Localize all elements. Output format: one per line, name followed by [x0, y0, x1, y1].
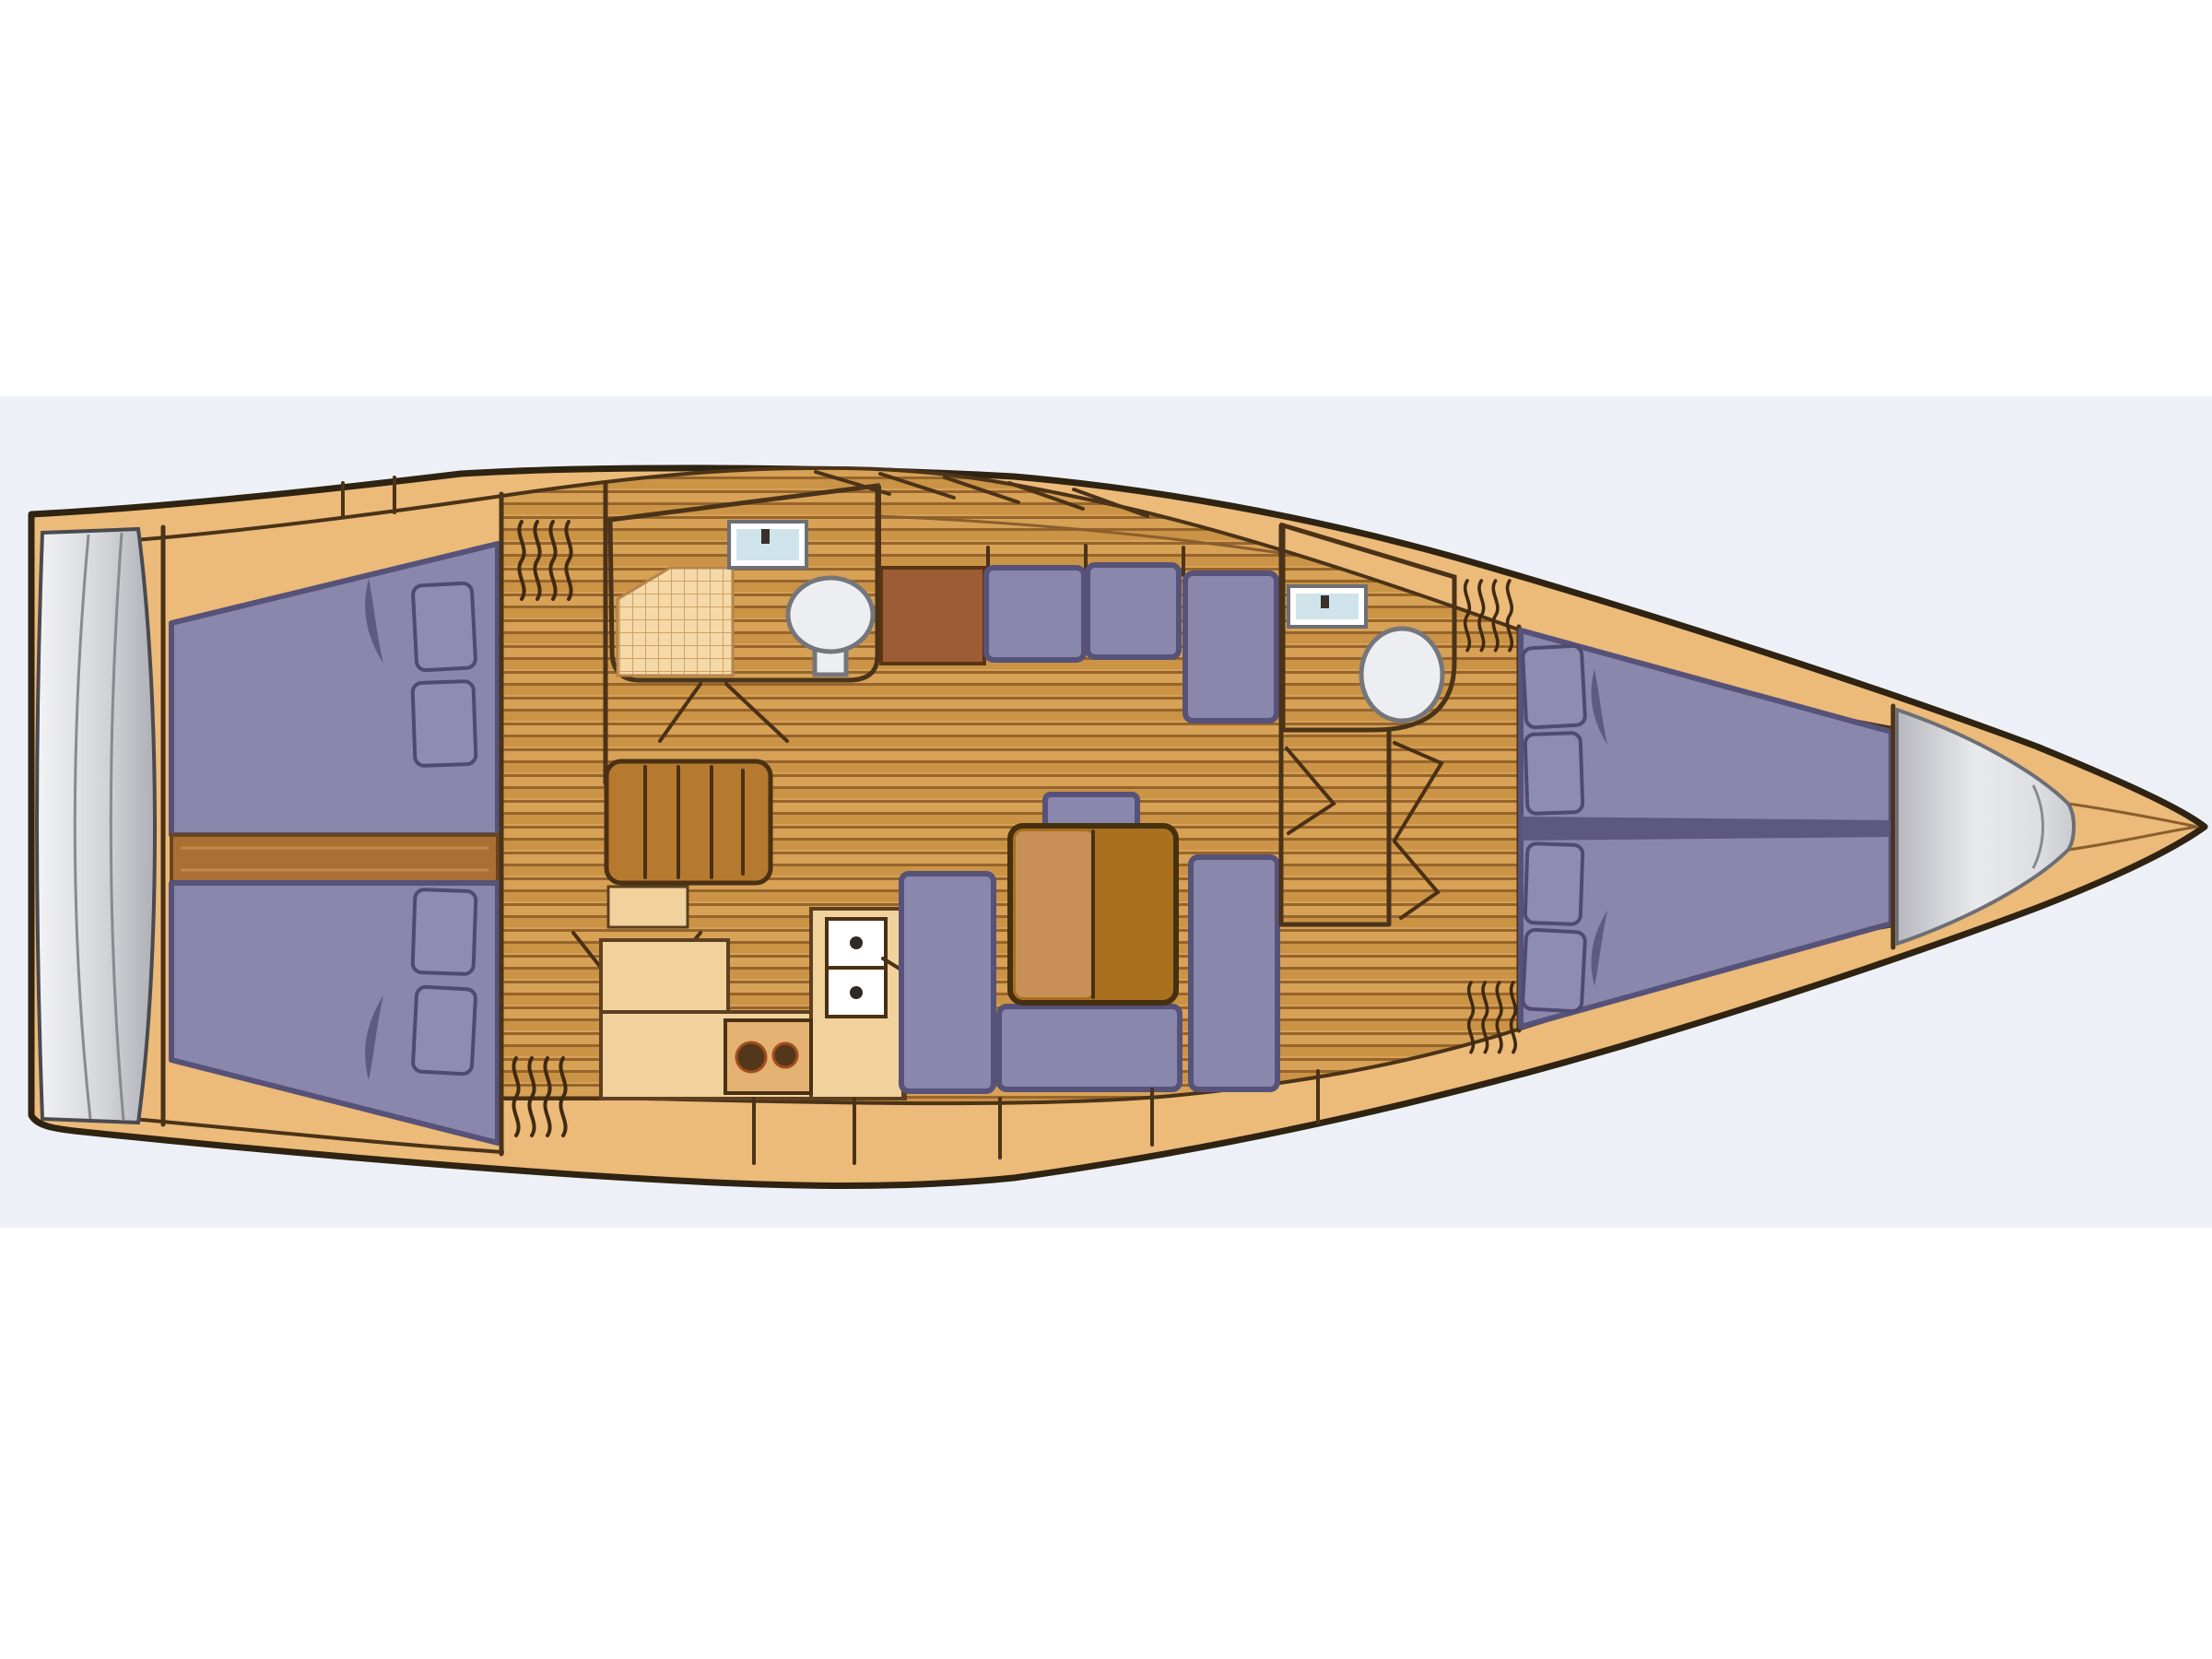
transom-swim-platform — [37, 527, 163, 1124]
v-berth-pillow-starboard-1 — [1525, 843, 1583, 924]
screenshot-root — [0, 0, 2212, 1659]
salon-bench-corner-cushion — [1185, 573, 1277, 721]
engine-corridor — [171, 835, 498, 883]
companionway-steps — [606, 761, 771, 883]
dinette-seat-right — [1191, 857, 1277, 1089]
floor-plan-canvas — [0, 0, 2212, 1659]
aft-port-pillow-1 — [413, 582, 477, 670]
dinette-seat-left — [901, 874, 994, 1091]
salon-sideboard — [881, 568, 984, 664]
dinette-table-leaf — [1016, 831, 1093, 997]
v-berth-pillow-starboard-2 — [1523, 929, 1585, 1011]
corridor-box — [171, 835, 498, 883]
aft-head-tap-icon — [761, 529, 770, 544]
aft-head-toilet — [788, 578, 873, 652]
stove-burner-1 — [736, 1042, 766, 1072]
companionway-landing — [608, 887, 688, 927]
aft-starboard-pillow-1 — [412, 889, 476, 974]
aft-port-pillow-2 — [412, 681, 476, 766]
aft-starboard-pillow-2 — [413, 986, 477, 1074]
v-berth-center-divider — [1521, 817, 1891, 841]
salon-bench-cushion-2 — [1088, 565, 1179, 657]
swim-platform-panel — [37, 529, 155, 1123]
dinette-seat-bottom — [999, 1006, 1180, 1089]
stove-burner-2 — [773, 1043, 797, 1067]
v-berth-pillow-port-1 — [1523, 645, 1585, 727]
galley-sink-drain-1 — [850, 936, 863, 949]
salon-bench-cushion-1 — [986, 568, 1084, 660]
forward-head-tap-icon — [1321, 595, 1329, 608]
v-berth-pillow-port-2 — [1525, 733, 1583, 814]
forward-head-toilet — [1361, 629, 1442, 721]
galley-sink-drain-2 — [850, 986, 863, 999]
